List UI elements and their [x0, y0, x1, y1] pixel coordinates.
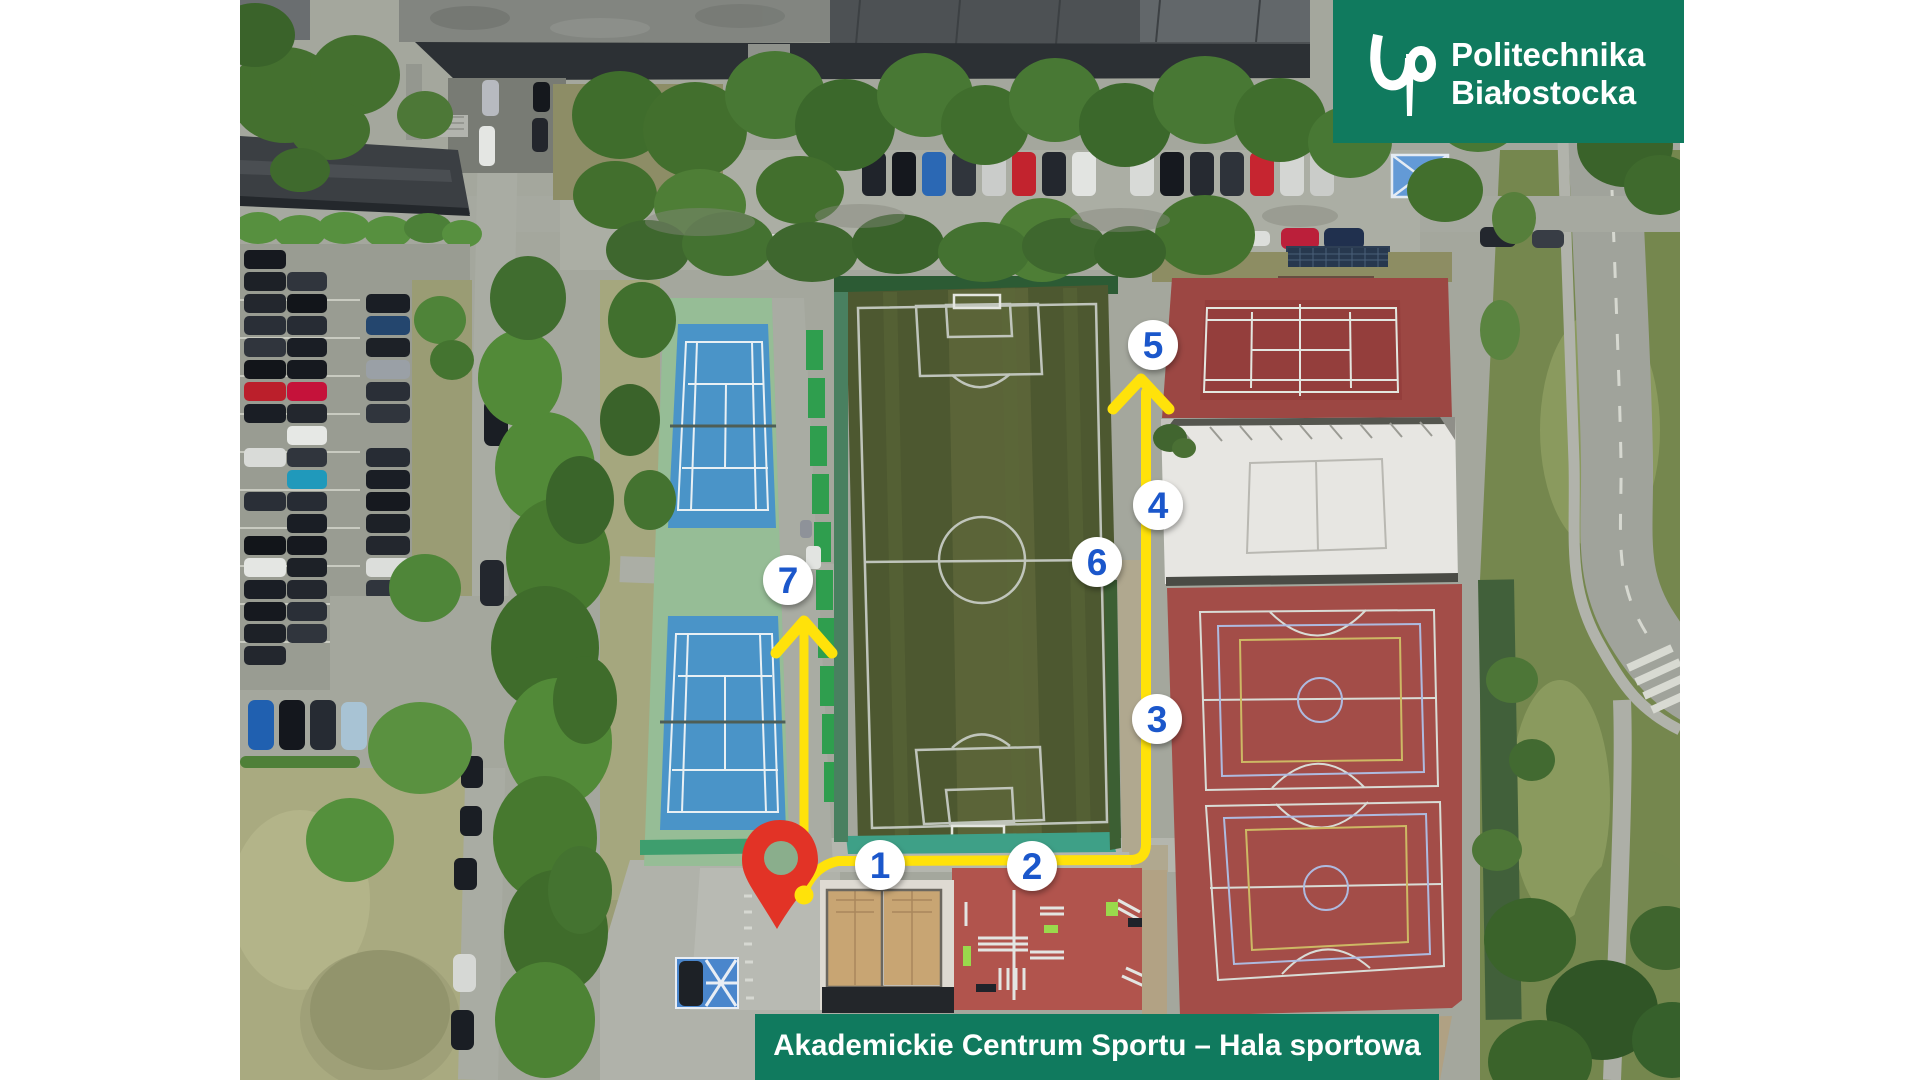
svg-text:5: 5 [1143, 325, 1164, 366]
svg-text:4: 4 [1148, 485, 1169, 526]
svg-text:2: 2 [1022, 846, 1043, 887]
svg-text:3: 3 [1147, 699, 1168, 740]
svg-text:1: 1 [870, 845, 891, 886]
svg-text:Białostocka: Białostocka [1451, 74, 1637, 111]
svg-text:Akademickie Centrum Sportu – H: Akademickie Centrum Sportu – Hala sporto… [773, 1029, 1421, 1062]
svg-text:6: 6 [1087, 542, 1108, 583]
svg-text:7: 7 [778, 560, 799, 601]
svg-text:Politechnika: Politechnika [1451, 36, 1646, 73]
